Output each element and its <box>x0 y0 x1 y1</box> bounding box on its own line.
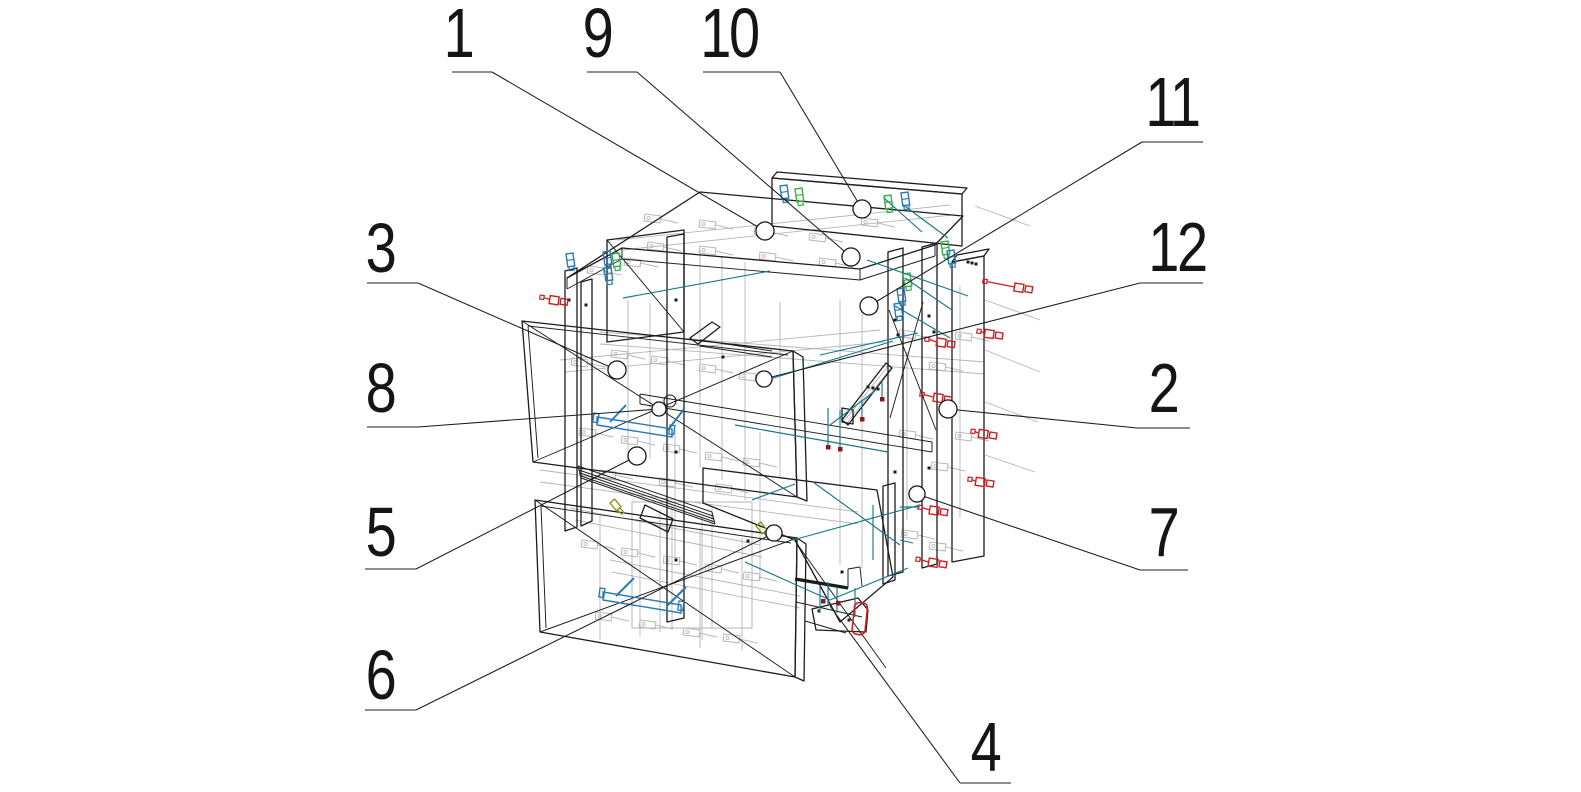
callout-label-10: 10 <box>700 0 758 72</box>
drill-mark-12 <box>872 387 875 390</box>
pin-mark-0 <box>826 445 831 450</box>
confirmat-screw-icon-5 <box>967 476 994 488</box>
callout-label-7: 7 <box>1149 494 1178 571</box>
callout-leader-diagonal-3 <box>418 283 617 370</box>
cam-fitting-icon-6 <box>621 436 656 447</box>
callout-label-1: 1 <box>444 0 473 72</box>
drill-mark-15 <box>971 262 974 265</box>
hole-circles <box>664 395 676 407</box>
gray-line-21 <box>985 455 1035 472</box>
callout-balloon-6 <box>766 525 782 541</box>
detail-line-21 <box>541 506 791 543</box>
gray-line-18 <box>985 300 1040 320</box>
cam-fitting-icon-14 <box>621 548 656 559</box>
drill-mark-18 <box>933 331 936 334</box>
gray-line-1 <box>540 482 858 524</box>
callout-balloon-11 <box>860 297 878 315</box>
drill-mark-10 <box>747 540 750 543</box>
back-top-rail-top-face <box>772 172 967 194</box>
callout-label-8: 8 <box>366 350 395 427</box>
cam-fitting-icon-13 <box>581 540 616 551</box>
drill-mark-7 <box>928 315 931 318</box>
cam-fitting-icon-33 <box>809 233 844 244</box>
callout-leader-diagonal-9 <box>637 72 851 257</box>
drill-mark-6 <box>894 471 897 474</box>
callout-7: 7 <box>909 486 1188 571</box>
trajectory-line-1 <box>867 260 968 296</box>
cam-fitting-icon-40 <box>861 218 896 229</box>
drill-mark-9 <box>722 356 725 359</box>
pin-mark-4 <box>821 599 826 604</box>
drill-mark-16 <box>975 263 978 266</box>
pin-mark-3 <box>880 397 885 402</box>
gray-line-22 <box>975 206 1030 226</box>
pin-mark-5 <box>836 601 841 606</box>
confirmat-screw-icon-1 <box>924 336 955 349</box>
callout-balloon-2 <box>939 400 957 418</box>
trajectory-line-4 <box>905 278 952 310</box>
callout-balloon-8 <box>652 402 666 416</box>
gray-line-20 <box>985 402 1038 422</box>
cam-fitting-icon-30 <box>644 214 679 225</box>
callout-balloon-3 <box>608 361 626 379</box>
gray-line-3 <box>600 344 985 374</box>
detail-line-26 <box>848 567 860 569</box>
gray-line-19 <box>985 350 1040 372</box>
drawing-canvas: 191011122738564 <box>0 0 1581 792</box>
callout-balloon-9 <box>842 248 860 266</box>
cam-fitting-icon-28 <box>901 530 936 541</box>
callout-balloon-12 <box>756 371 772 387</box>
lower-drawer-front-edge <box>795 538 806 681</box>
shelf-clip-blue-icon-6 <box>604 267 613 285</box>
drill-mark-1 <box>675 451 678 454</box>
callout-leader-diagonal-7 <box>917 494 1140 570</box>
callout-label-4: 4 <box>971 709 1001 786</box>
trajectory-line-10 <box>813 482 900 545</box>
trajectory-line-0 <box>623 271 770 298</box>
confirmat-screw-icon-0 <box>982 278 1033 294</box>
exploded-view-drawing: 191011122738564 <box>0 0 1581 792</box>
slide-wedge <box>640 505 673 532</box>
drill-mark-21 <box>841 571 844 574</box>
callout-leader-diagonal-4 <box>830 606 960 783</box>
callout-balloon-10 <box>853 200 871 218</box>
pin-mark-2 <box>860 417 865 422</box>
drill-mark-14 <box>967 261 970 264</box>
drill-mark-20 <box>848 619 851 622</box>
confirmat-screw-icon-2 <box>976 328 1003 340</box>
callout-leader-diagonal-6 <box>416 533 774 710</box>
detail-line-28 <box>796 602 862 617</box>
detail-line-31 <box>581 478 715 524</box>
cam-fitting-icon-15 <box>663 556 698 567</box>
confirmat-screw-icon-8 <box>539 294 568 306</box>
callout-balloon-7 <box>909 486 925 502</box>
upper-drawer-front-edge <box>793 351 807 501</box>
thick-edge-0 <box>795 579 848 588</box>
detail-line-35 <box>580 473 714 519</box>
pin-mark-1 <box>838 447 843 452</box>
callout-label-6: 6 <box>366 637 395 714</box>
callout-label-11: 11 <box>1145 64 1199 141</box>
fastener-screws <box>539 278 1033 569</box>
trajectory-line-24 <box>900 540 913 543</box>
callout-balloon-5 <box>628 447 646 465</box>
callout-label-3: 3 <box>366 210 395 287</box>
callout-leader-diagonal-2 <box>948 409 1137 428</box>
drill-mark-11 <box>867 386 870 389</box>
panel-outlines <box>522 172 989 681</box>
detail-line-22 <box>541 506 546 628</box>
callout-3: 3 <box>366 210 626 379</box>
callout-label-9: 9 <box>583 0 612 72</box>
confirmat-screw-icon-7 <box>915 556 947 569</box>
drill-mark-4 <box>585 304 588 307</box>
detail-line-29 <box>805 621 846 633</box>
callout-leader-diagonal-10 <box>780 72 862 209</box>
gray-line-28 <box>575 520 762 557</box>
callout-label-5: 5 <box>366 494 395 571</box>
callout-leader-diagonal-5 <box>416 456 637 569</box>
callout-balloon-1 <box>756 222 774 240</box>
handle-bracket-0 <box>593 405 684 437</box>
diagonal-brace <box>842 363 892 425</box>
drill-mark-17 <box>897 334 900 337</box>
gray-line-27 <box>570 508 760 545</box>
trajectory-line-8 <box>735 425 888 452</box>
gray-line-35 <box>610 560 800 596</box>
callout-leader-diagonal-1 <box>492 72 765 231</box>
callout-leader-diagonal-8 <box>418 409 659 427</box>
shelf-clip-green-icon-0 <box>795 188 804 206</box>
cam-fitting-icon-7 <box>663 444 698 455</box>
mounting-clips <box>566 185 956 321</box>
callout-2: 2 <box>939 350 1190 428</box>
hole-circle-0 <box>664 395 676 407</box>
gray-line-0 <box>540 470 858 512</box>
drill-mark-8 <box>928 467 931 470</box>
detail-line-5 <box>860 256 935 280</box>
cam-fitting-icon-29 <box>929 542 964 553</box>
cam-fitting-icon-26 <box>931 462 966 473</box>
callouts: 191011122738564 <box>365 0 1206 786</box>
drill-mark-5 <box>894 319 897 322</box>
drill-mark-0 <box>675 299 678 302</box>
gray-line-5 <box>622 215 952 250</box>
cam-fitting-icon-3 <box>699 364 734 375</box>
detail-line-27 <box>860 567 862 586</box>
callout-label-12: 12 <box>1148 209 1206 286</box>
callout-5: 5 <box>365 447 646 571</box>
detail-line-20 <box>528 326 538 458</box>
shelf-clip-blue-icon-7 <box>566 253 575 271</box>
shelf-clip-green-icon-1 <box>884 195 893 213</box>
callout-4: 4 <box>830 606 1011 786</box>
gray-box-0 <box>632 502 752 628</box>
callout-12: 12 <box>756 209 1206 387</box>
dowel-screw-icon-0 <box>610 499 625 515</box>
callout-label-2: 2 <box>1149 350 1178 427</box>
callout-leader-diagonal-11 <box>869 142 1142 306</box>
drill-mark-2 <box>675 559 678 562</box>
drill-mark-13 <box>877 388 880 391</box>
